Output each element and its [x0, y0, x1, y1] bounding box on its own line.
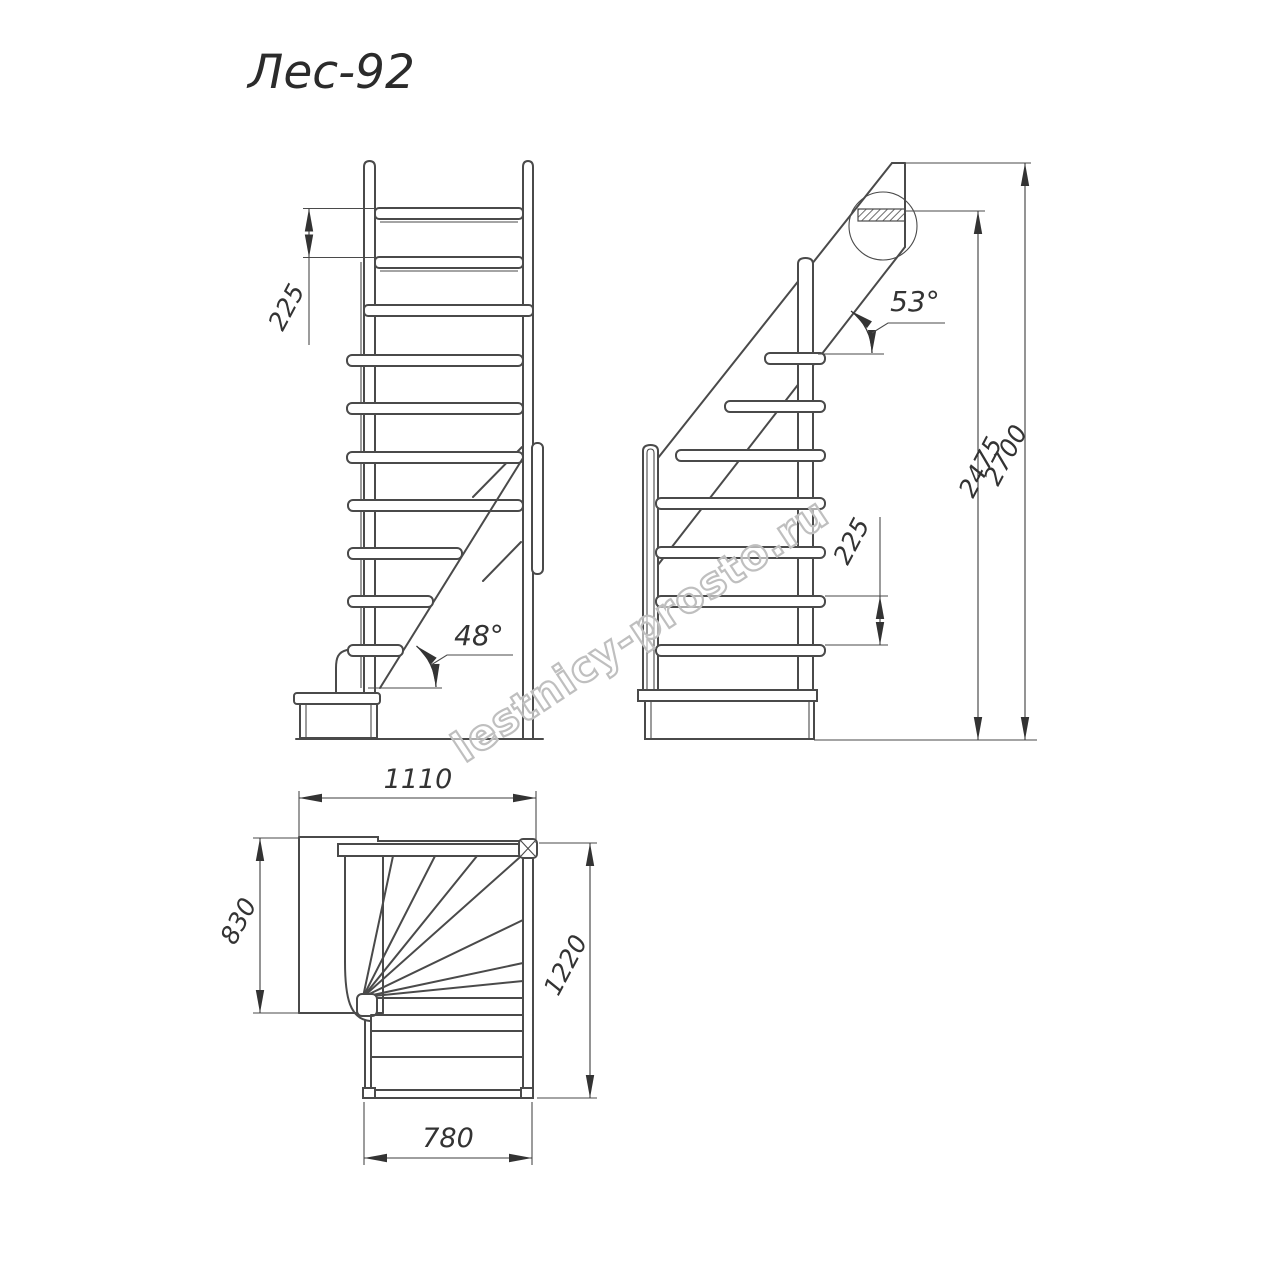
tread [725, 401, 825, 412]
detail-circle [849, 192, 917, 260]
tread [656, 645, 825, 656]
dim-1220: 1220 [538, 930, 593, 1000]
side-angle-annotation: 53° [818, 285, 945, 354]
front-rail-fragment [483, 542, 521, 581]
front-riser-dim: 225 [262, 279, 310, 335]
base-plinth [645, 701, 814, 739]
tread [676, 450, 825, 461]
side-height-dimensions: 2475 2700 [814, 163, 1037, 740]
side-base [638, 690, 817, 739]
leader-line [431, 655, 513, 665]
plan-corner-post [519, 839, 537, 858]
angle-arc [417, 646, 437, 687]
page-title: Лес-92 [246, 45, 415, 100]
side-riser-dim: 225 [827, 513, 875, 569]
bottom-step [294, 693, 380, 704]
base-plinth [300, 704, 377, 738]
top-tread-section [858, 209, 905, 221]
tread [347, 355, 523, 366]
tread [348, 645, 403, 656]
dim-1110: 1110 [384, 764, 453, 795]
leader-line [872, 323, 945, 333]
side-angle-label: 53° [890, 285, 940, 318]
side-center-post [798, 258, 813, 690]
side-riser-dimension: 225 [825, 513, 888, 645]
tread [347, 403, 523, 414]
tread [348, 548, 462, 559]
front-stringer-fragments [473, 447, 522, 581]
front-angle-label: 48° [454, 619, 504, 652]
winder-edge [363, 920, 523, 997]
angle-arc [851, 311, 872, 353]
plan-center-post [357, 994, 377, 1016]
newel-curve [336, 650, 347, 693]
tread [375, 208, 523, 219]
tread [364, 305, 533, 316]
winder-edge [363, 856, 435, 997]
side-elevation-view: 53° 225 2475 2700 [638, 163, 1037, 740]
winder-edge [363, 856, 393, 997]
dim-830: 830 [214, 893, 262, 949]
tread [765, 353, 825, 364]
base-top-band [638, 690, 817, 701]
flight-foot-block [363, 1088, 375, 1098]
plan-top-edge [299, 837, 519, 841]
plan-top-tread-band [338, 844, 535, 856]
winder-edge [363, 981, 523, 997]
front-winder-treads [294, 548, 462, 704]
front-riser-dimension: 225 [262, 209, 375, 346]
winder-edge [363, 858, 519, 997]
tread [348, 596, 433, 607]
plan-dimensions: 1110 830 1220 780 [214, 764, 597, 1165]
flight-foot-block [521, 1088, 533, 1098]
tread [375, 257, 523, 268]
front-elevation-view: 225 48° [262, 161, 543, 739]
tread [347, 452, 523, 463]
section-detail [849, 192, 917, 260]
stair-drawing-canvas: Лес-92 [0, 0, 1280, 1280]
front-side-stringer-edge [532, 443, 543, 574]
plan-view: 1110 830 1220 780 [214, 764, 597, 1165]
drawing-sheet: Лес-92 [0, 0, 1280, 1280]
dim-780: 780 [422, 1123, 474, 1154]
